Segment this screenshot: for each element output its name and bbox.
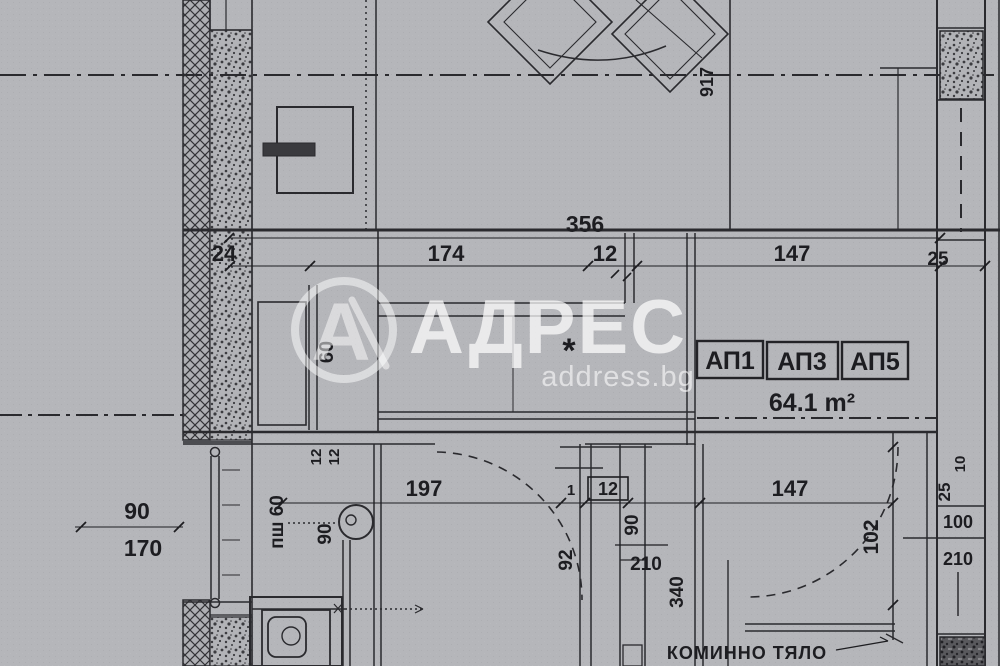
dim-12-top: 12 [593, 241, 617, 266]
watermark-logo-letter: А [311, 287, 370, 378]
dim-25-col: 25 [935, 483, 954, 502]
dim-170-outer: 170 [124, 535, 162, 561]
dim-147-top: 147 [774, 241, 811, 266]
floor-plan-drawing: 356 24 174 12 147 25 917 60 90 170 197 1… [0, 0, 1000, 666]
dim-24: 24 [212, 241, 237, 266]
appliance-hatch [263, 143, 315, 156]
dim-917: 917 [697, 67, 717, 97]
dim-90-wc-door: 90 [622, 514, 643, 535]
dim-12-wall-a: 12 [308, 449, 325, 466]
dim-12-wall-b: 12 [326, 449, 343, 466]
dim-147-mid: 147 [772, 476, 809, 501]
dim-100-entry-door: 100 [943, 512, 973, 532]
dim-90-kitchen-door: 90 [315, 523, 336, 544]
dim-total-356: 356 [566, 211, 604, 237]
dim-92: 92 [556, 549, 577, 570]
label-slide-door: пш 60 [267, 495, 288, 549]
dim-210-entry-door: 210 [943, 549, 973, 569]
area-label: 64.1 m² [769, 389, 855, 417]
dim-210-wc-door: 210 [630, 554, 662, 575]
dim-10-col: 10 [952, 456, 969, 473]
floor-plan-scan: 356 24 174 12 147 25 917 60 90 170 197 1… [0, 0, 1000, 666]
dim-340: 340 [667, 576, 688, 608]
chimney-label: КОМИННО ТЯЛО [667, 643, 827, 663]
dim-90-outer: 90 [124, 498, 150, 524]
watermark-site: address.bg [541, 361, 695, 393]
dim-12-boxed: 12 [598, 479, 618, 499]
chimney-block [940, 637, 985, 666]
dim-25-top: 25 [927, 249, 949, 270]
unit-label-2: АП3 [777, 348, 827, 376]
dim-1: 1 [567, 482, 575, 499]
unit-label-1: АП1 [705, 347, 755, 375]
unit-label-3: АП5 [850, 348, 900, 376]
watermark-brand: АДРЕС [409, 285, 687, 370]
dim-174: 174 [428, 241, 465, 266]
dim-102: 102 [860, 519, 883, 554]
dim-197: 197 [406, 476, 443, 501]
